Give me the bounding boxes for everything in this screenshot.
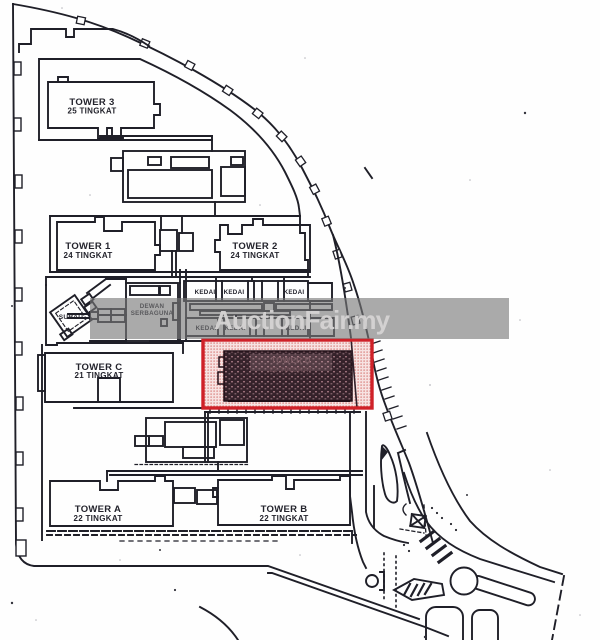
- svg-text:21 TINGKAT: 21 TINGKAT: [74, 371, 123, 380]
- svg-text:22 TINGKAT: 22 TINGKAT: [73, 514, 122, 523]
- svg-text:24 TINGKAT: 24 TINGKAT: [63, 251, 112, 260]
- svg-text:25 TINGKAT: 25 TINGKAT: [67, 107, 116, 116]
- svg-text:22 TINGKAT: 22 TINGKAT: [259, 514, 308, 523]
- svg-text:24 TINGKAT: 24 TINGKAT: [230, 251, 279, 260]
- svg-text:22 TINGKAT: 22 TINGKAT: [269, 367, 313, 374]
- svg-text:KEDAI: KEDAI: [195, 289, 216, 296]
- svg-text:KEDAI: KEDAI: [284, 289, 305, 296]
- svg-text:KEDAI: KEDAI: [224, 289, 245, 296]
- svg-text:TOWER D: TOWER D: [271, 356, 311, 365]
- svg-text:AuctionFair.my: AuctionFair.my: [214, 305, 391, 335]
- svg-text:SURAU: SURAU: [59, 314, 84, 321]
